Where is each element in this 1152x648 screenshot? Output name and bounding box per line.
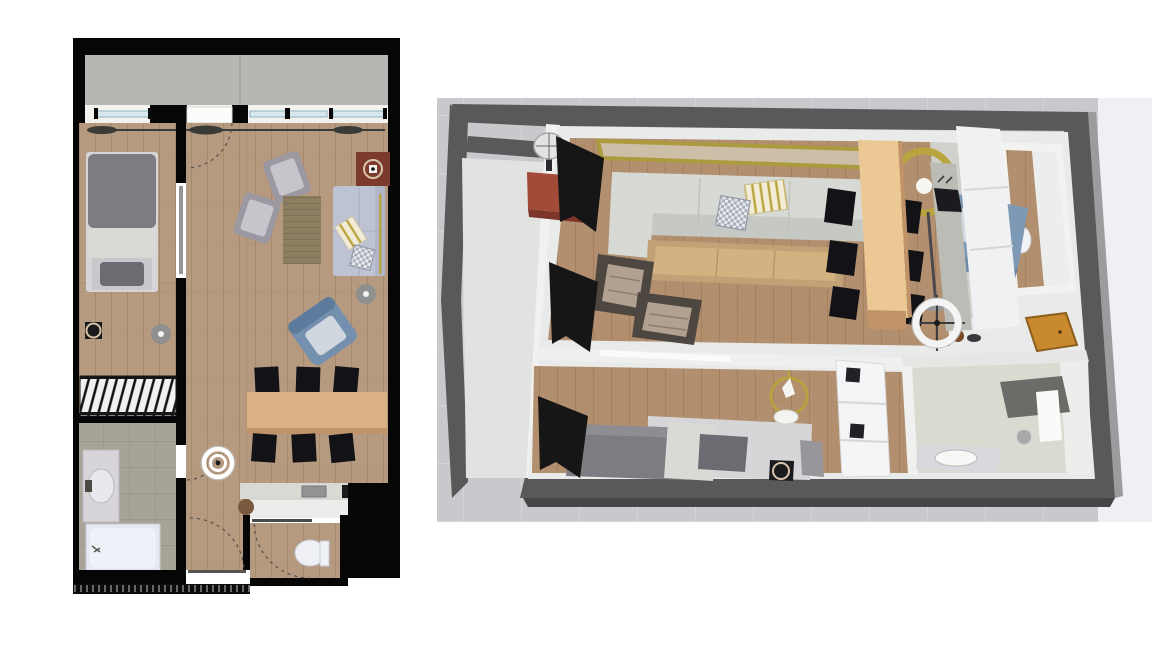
wall-stove bbox=[85, 322, 102, 339]
view-3d bbox=[437, 98, 1152, 522]
wardrobe-body bbox=[836, 360, 890, 477]
hall-ceiling-light bbox=[201, 446, 235, 480]
bed-pillow bbox=[698, 434, 748, 472]
entry-door bbox=[188, 570, 246, 573]
dining-chair bbox=[251, 433, 277, 463]
window-end bbox=[148, 108, 152, 119]
tick-fringe bbox=[73, 584, 250, 594]
nightstand bbox=[800, 440, 824, 477]
wardrobe bbox=[836, 360, 890, 477]
bedroom-wall bbox=[176, 278, 186, 330]
curtain-bunch bbox=[333, 126, 363, 134]
bottom-wall bbox=[520, 477, 1115, 498]
left-balcony-wall bbox=[73, 38, 85, 123]
radiator-rail bbox=[80, 376, 176, 379]
balcony bbox=[85, 55, 388, 105]
wall-pier bbox=[232, 105, 248, 123]
stool bbox=[238, 499, 254, 515]
balcony-door bbox=[187, 107, 232, 123]
basin bbox=[935, 450, 977, 466]
handle bbox=[846, 368, 861, 383]
area-rug bbox=[283, 196, 321, 264]
dining-chair bbox=[254, 366, 279, 395]
dining-chair bbox=[333, 366, 359, 396]
toilet-tank bbox=[320, 541, 329, 566]
faucet bbox=[85, 480, 92, 492]
cooktop bbox=[934, 188, 962, 212]
chandelier-bowl bbox=[774, 410, 798, 424]
bedroom-wall bbox=[176, 123, 186, 183]
dining-chair bbox=[291, 433, 316, 462]
right-wall bbox=[388, 38, 400, 483]
floor-lamp bbox=[379, 194, 382, 274]
wall-pier bbox=[150, 105, 187, 123]
scene-svg bbox=[0, 0, 1152, 648]
curtain-bunch bbox=[87, 126, 117, 134]
coffee-table bbox=[646, 240, 846, 288]
dining-chair bbox=[329, 433, 356, 463]
checkered-pillow bbox=[350, 245, 375, 270]
dining-chair bbox=[826, 240, 858, 276]
wc-wall bbox=[243, 578, 348, 586]
ceiling-light-center bbox=[363, 291, 369, 297]
lamp-bulb bbox=[916, 178, 932, 194]
table-edge bbox=[247, 428, 387, 434]
armchair bbox=[632, 292, 702, 345]
window-end bbox=[94, 108, 98, 119]
bed-duvet bbox=[88, 154, 156, 228]
bath-wall bbox=[176, 478, 186, 570]
checkered-pillow bbox=[716, 196, 751, 231]
pillow bbox=[350, 245, 375, 270]
ring-center bbox=[216, 461, 221, 466]
radiator-rail bbox=[80, 412, 176, 415]
window-mullion bbox=[285, 108, 290, 119]
bottom-wall-face bbox=[523, 498, 1115, 507]
handle bbox=[850, 424, 865, 439]
floor-plan-2d bbox=[73, 38, 400, 594]
window-end bbox=[383, 108, 387, 119]
ceiling-light-center bbox=[158, 331, 164, 337]
top-wall bbox=[73, 38, 400, 55]
shower-glass bbox=[1036, 390, 1062, 442]
window-row bbox=[85, 105, 388, 123]
dining-chair bbox=[296, 367, 321, 396]
dining-chair bbox=[824, 188, 856, 226]
door-knob bbox=[1058, 330, 1062, 334]
radiator bbox=[80, 376, 176, 416]
balcony-slab bbox=[85, 55, 388, 105]
left-wall bbox=[73, 123, 79, 570]
living-window bbox=[333, 111, 385, 117]
bath-door-opening bbox=[176, 445, 186, 478]
stove-dot bbox=[371, 167, 375, 171]
hall-wall bbox=[176, 330, 186, 445]
dining-table bbox=[247, 392, 387, 434]
wall-mass bbox=[348, 483, 400, 578]
wc-wall bbox=[340, 515, 348, 581]
bedroom-window bbox=[97, 111, 150, 117]
pocket-door bbox=[179, 186, 183, 274]
curtain-bunch bbox=[189, 126, 223, 135]
apartment-renders bbox=[0, 0, 1152, 648]
toilet-room bbox=[243, 515, 348, 586]
lamp-base bbox=[546, 158, 552, 171]
window-end bbox=[329, 108, 333, 119]
kitchen-sink bbox=[302, 486, 326, 497]
table-base bbox=[866, 310, 906, 330]
ring-center bbox=[934, 320, 940, 326]
bed-pillow bbox=[100, 262, 144, 286]
wc-door bbox=[252, 519, 312, 522]
pot bbox=[967, 334, 981, 342]
round-mirror bbox=[1016, 429, 1032, 445]
striped-pillow bbox=[744, 179, 788, 214]
dining-chair bbox=[829, 286, 860, 320]
bed-blanket bbox=[88, 228, 156, 258]
